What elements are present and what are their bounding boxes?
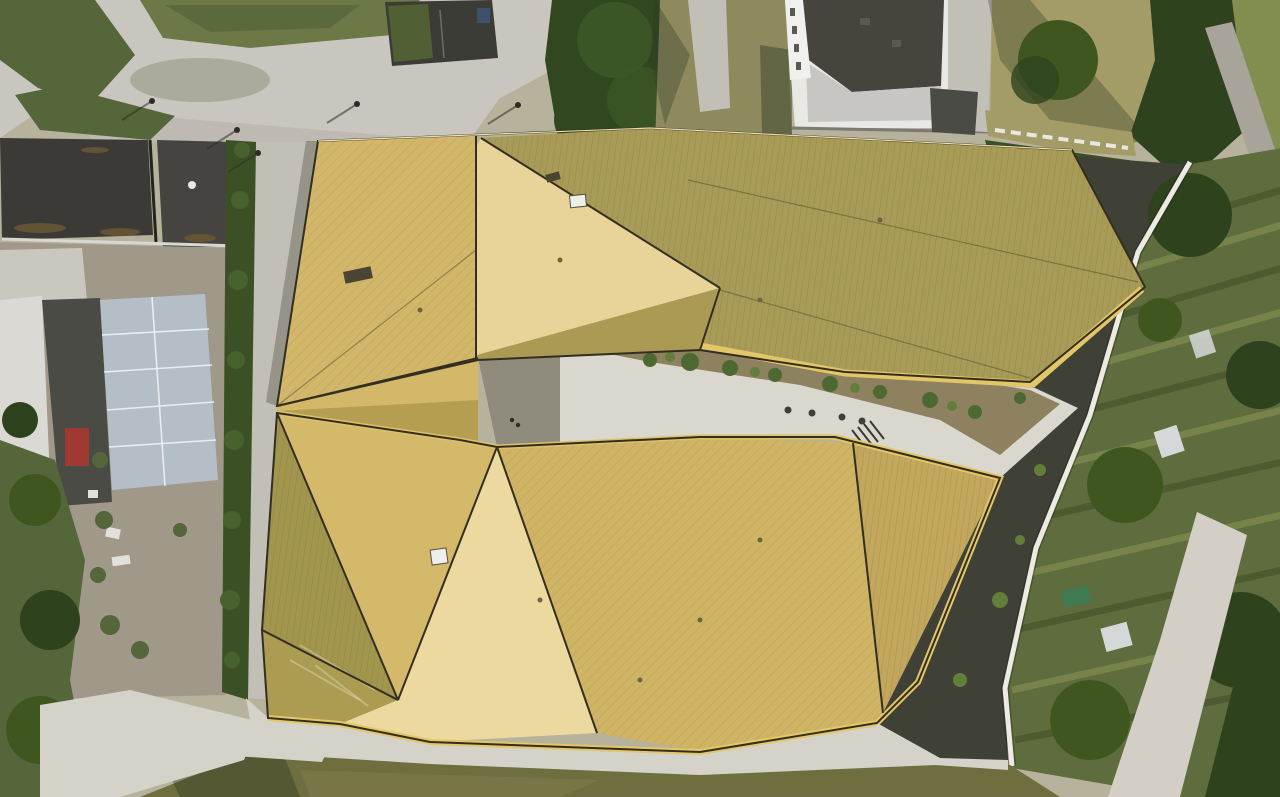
- sunken-patio-planter: [388, 4, 433, 62]
- conifer-tree: [577, 2, 653, 78]
- rooftop-skylight-upper: [569, 194, 586, 208]
- rooftop-skylight-lower: [430, 548, 448, 565]
- aerial-photo-root: [0, 0, 1280, 797]
- blue-car: [477, 8, 490, 23]
- construction-debris: [0, 248, 87, 305]
- asphalt-corner: [930, 88, 978, 135]
- aerial-photo-canvas: [0, 0, 1280, 797]
- allotment-tree: [1087, 447, 1163, 523]
- red-container: [65, 428, 89, 466]
- tree-shadow-plaza: [130, 58, 270, 102]
- allotment-tree: [1138, 298, 1182, 342]
- fence-shadow-band: [760, 45, 792, 140]
- large-tree-shade: [1011, 56, 1059, 104]
- tree-blob: [20, 590, 80, 650]
- tree-blob: [2, 402, 38, 438]
- roof-vent-white: [188, 181, 196, 189]
- tree-blob: [9, 474, 61, 526]
- allotment-tree: [1050, 680, 1130, 760]
